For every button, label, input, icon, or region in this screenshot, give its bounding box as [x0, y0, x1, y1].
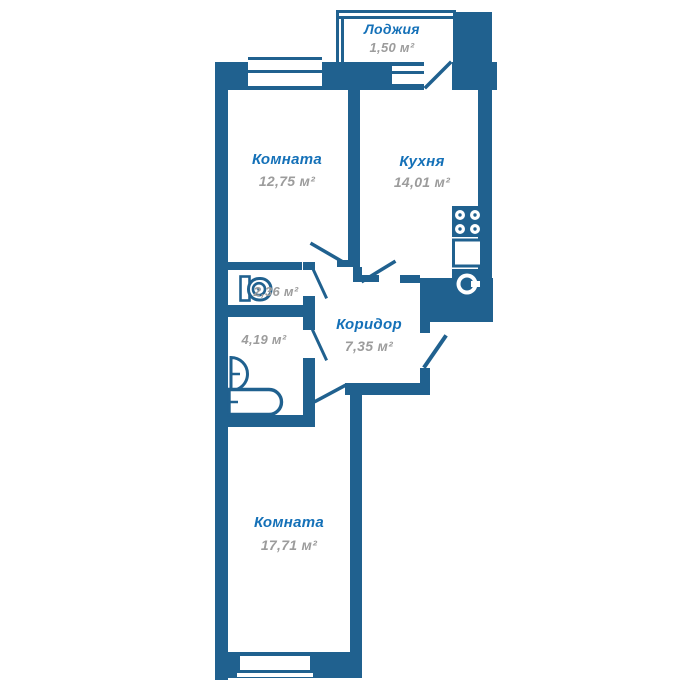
kitchen-name: Кухня	[371, 153, 473, 170]
washbasin-icon	[231, 358, 248, 391]
corridor-name: Коридор	[317, 316, 421, 333]
room1-area: 12,75 м²	[230, 173, 344, 189]
window-kitchen	[392, 66, 424, 84]
window-room1	[248, 62, 322, 86]
wall-entry-jamb-bottom	[420, 368, 430, 383]
wall-left	[215, 62, 228, 680]
door-swing-icon-entry	[425, 337, 445, 366]
loggia-glazing-inner	[336, 16, 456, 19]
room2-area: 17,71 м²	[232, 537, 346, 553]
room2-name: Комната	[232, 514, 346, 531]
window-room1-mid-line	[248, 70, 322, 73]
window-room1-outer-line	[248, 57, 322, 60]
wall-room2-top	[345, 383, 430, 395]
door-swing-icon-room2	[316, 386, 344, 401]
wall-wc-top	[228, 262, 302, 270]
loggia-glazing-left	[336, 10, 339, 62]
wall-divider-foot	[337, 260, 360, 267]
floor-plan: Лоджия 1,50 м² Комната 12,75 м² Кухня 14…	[0, 0, 700, 700]
wall-right-upper	[478, 62, 492, 278]
bathtub-icon	[229, 390, 282, 415]
loggia-glazing-outer	[336, 10, 456, 13]
wall-wc-bath-divider	[215, 305, 315, 317]
wall-wc-right-a	[303, 262, 315, 270]
loggia-name: Лоджия	[342, 21, 442, 37]
window-room2	[240, 656, 310, 670]
wc-area: 2,36 м²	[246, 284, 306, 299]
wall-kitchen-stub	[400, 275, 420, 283]
wall-kitchen-jamb-foot	[353, 275, 379, 282]
wall-bath-bottom	[215, 415, 315, 427]
wall-loggia-right	[453, 12, 492, 62]
wall-entry-jamb-top	[420, 322, 430, 333]
corridor-area: 7,35 м²	[317, 338, 421, 354]
window-kitchen-mid-line	[392, 71, 424, 74]
loggia-area: 1,50 м²	[342, 40, 442, 55]
balcony-door-opening	[424, 62, 452, 90]
wall-corner-block	[420, 278, 493, 322]
room1-name: Комната	[230, 151, 344, 168]
door-swing-icon-wc	[313, 269, 326, 297]
kitchen-area: 14,01 м²	[371, 174, 473, 190]
window-room2-outer-slot	[237, 673, 313, 677]
wall-room2-right	[350, 395, 362, 678]
bathroom-area: 4,19 м²	[234, 332, 294, 347]
wall-room1-kitchen-divider	[348, 90, 360, 267]
